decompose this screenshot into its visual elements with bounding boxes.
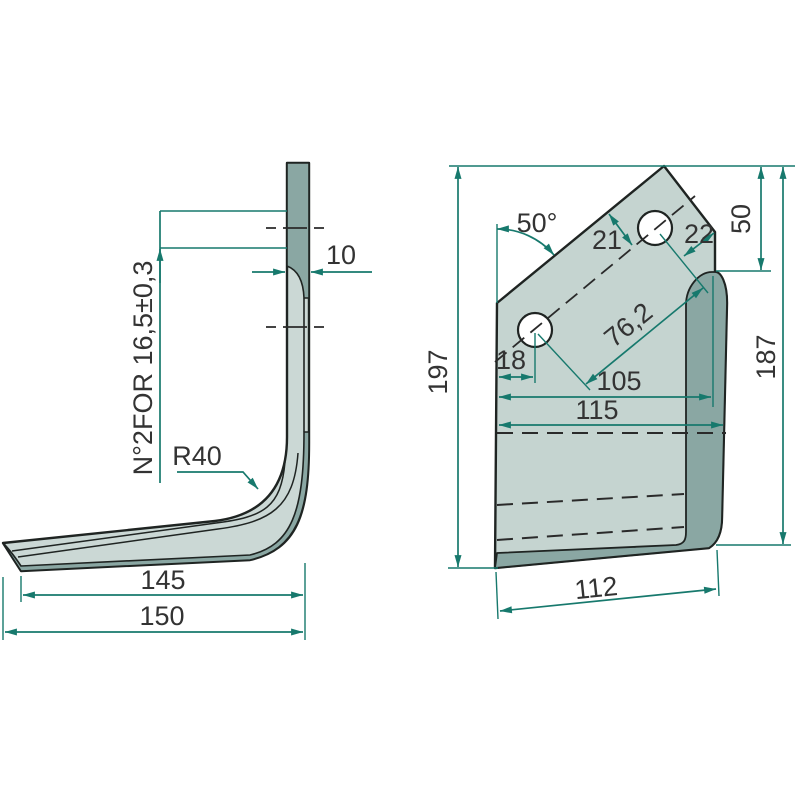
- dim-label-112: 112: [573, 571, 619, 605]
- dim-label-187: 187: [751, 334, 781, 379]
- blade-drawing-canvas: N°2FOR 16,5±0,3 R40 10 145 150: [0, 0, 800, 800]
- ext-112-left: [496, 572, 498, 619]
- leader-r40: [177, 472, 258, 489]
- side-view: [3, 163, 330, 571]
- dim-label-21: 21: [592, 225, 622, 255]
- dim-label-hole-note: N°2FOR 16,5±0,3: [128, 261, 158, 476]
- dim-label-105: 105: [596, 366, 641, 396]
- side-view-dimensions: N°2FOR 16,5±0,3 R40 10 145 150: [3, 211, 372, 640]
- dim-label-22: 22: [684, 219, 714, 249]
- dim-label-197: 197: [423, 349, 453, 394]
- ext-112-right: [717, 550, 719, 596]
- technical-drawing-page: N°2FOR 16,5±0,3 R40 10 145 150: [0, 0, 800, 800]
- dim-label-145: 145: [140, 565, 185, 595]
- dim-label-18: 18: [496, 345, 526, 375]
- dim-label-angle: 50°: [517, 208, 558, 238]
- dim-label-50: 50: [726, 204, 756, 234]
- dim-label-115: 115: [575, 395, 618, 425]
- dim-label-thickness: 10: [326, 240, 356, 270]
- dim-label-150: 150: [139, 601, 184, 631]
- dim-label-r40: R40: [172, 441, 222, 471]
